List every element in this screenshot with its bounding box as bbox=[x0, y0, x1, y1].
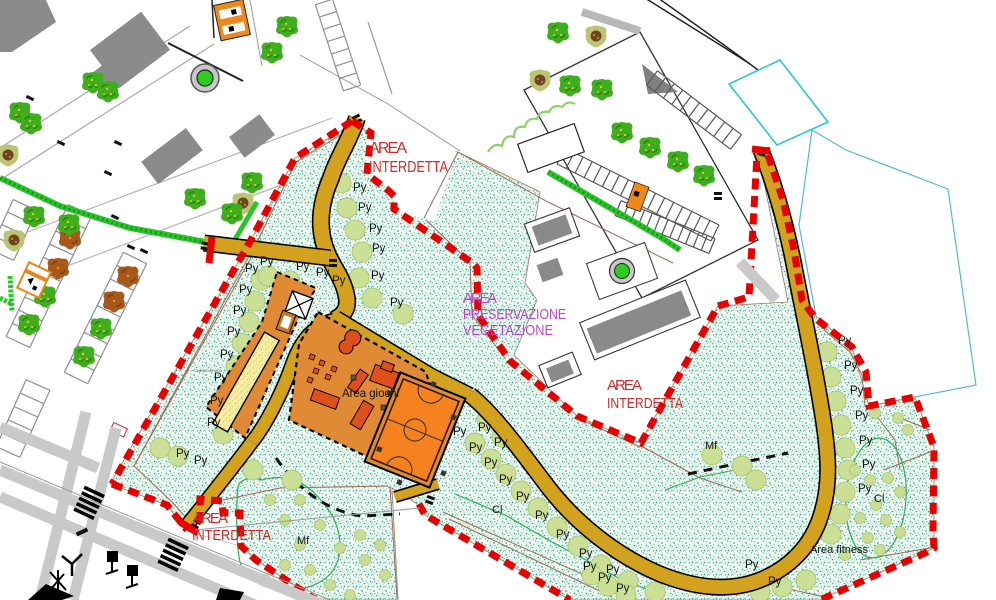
svg-text:Py: Py bbox=[516, 491, 530, 503]
svg-text:Py: Py bbox=[233, 305, 247, 317]
svg-text:Py: Py bbox=[296, 261, 310, 273]
svg-text:Py: Py bbox=[239, 284, 253, 296]
svg-text:Py: Py bbox=[850, 385, 864, 397]
svg-text:Py: Py bbox=[210, 395, 224, 407]
svg-text:Py: Py bbox=[316, 267, 330, 279]
svg-text:VEGETAZIONE: VEGETAZIONE bbox=[463, 323, 553, 339]
svg-text:AREA: AREA bbox=[193, 510, 228, 527]
svg-text:Py: Py bbox=[859, 435, 873, 447]
svg-text:Py: Py bbox=[390, 297, 404, 309]
svg-text:AREA: AREA bbox=[607, 377, 642, 394]
svg-text:Py: Py bbox=[214, 372, 228, 384]
svg-text:INTERDETTA: INTERDETTA bbox=[192, 527, 271, 544]
svg-text:Py: Py bbox=[858, 483, 872, 495]
svg-text:Mf: Mf bbox=[297, 535, 310, 547]
svg-text:Mf: Mf bbox=[705, 440, 718, 452]
svg-text:Py: Py bbox=[207, 417, 221, 429]
svg-text:Area fitness: Area fitness bbox=[810, 544, 868, 556]
svg-text:Py: Py bbox=[499, 474, 513, 486]
svg-text:Cl: Cl bbox=[492, 504, 502, 516]
svg-text:Py: Py bbox=[453, 426, 467, 438]
svg-text:Py: Py bbox=[494, 437, 508, 449]
svg-text:Py: Py bbox=[768, 576, 782, 588]
svg-text:Area giochi: Area giochi bbox=[342, 386, 399, 400]
svg-text:Py: Py bbox=[583, 561, 597, 573]
svg-text:AREA: AREA bbox=[463, 291, 497, 307]
svg-text:Py: Py bbox=[745, 559, 759, 571]
svg-text:Py: Py bbox=[469, 442, 483, 454]
svg-text:Py: Py bbox=[332, 275, 346, 287]
svg-text:Py: Py bbox=[579, 548, 593, 560]
svg-text:Py: Py bbox=[245, 263, 259, 275]
svg-text:Py: Py bbox=[194, 455, 208, 467]
svg-text:Py: Py bbox=[598, 572, 612, 584]
svg-text:Py: Py bbox=[227, 326, 241, 338]
svg-text:Py: Py bbox=[535, 510, 549, 522]
svg-text:Py: Py bbox=[844, 360, 858, 372]
svg-text:Py: Py bbox=[260, 256, 274, 268]
svg-text:Py: Py bbox=[220, 349, 234, 361]
svg-text:Py: Py bbox=[484, 457, 498, 469]
svg-text:Py: Py bbox=[838, 335, 852, 347]
svg-text:Py: Py bbox=[358, 202, 372, 214]
svg-text:PRESERVAZIONE: PRESERVAZIONE bbox=[463, 307, 566, 323]
svg-text:INTERDETTA: INTERDETTA bbox=[369, 159, 448, 176]
svg-text:Cl: Cl bbox=[874, 493, 884, 505]
svg-text:Py: Py bbox=[371, 270, 385, 282]
svg-text:Py: Py bbox=[176, 448, 190, 460]
svg-text:Py: Py bbox=[862, 459, 876, 471]
svg-text:Py: Py bbox=[369, 223, 383, 235]
svg-text:Py: Py bbox=[372, 243, 386, 255]
svg-text:Py: Py bbox=[616, 583, 630, 595]
svg-text:Py: Py bbox=[353, 182, 367, 194]
svg-text:Py: Py bbox=[556, 529, 570, 541]
svg-text:Py: Py bbox=[478, 422, 492, 434]
svg-text:INTERDETTA: INTERDETTA bbox=[607, 395, 683, 412]
svg-text:AREA: AREA bbox=[369, 140, 407, 157]
svg-text:Py: Py bbox=[855, 410, 869, 422]
